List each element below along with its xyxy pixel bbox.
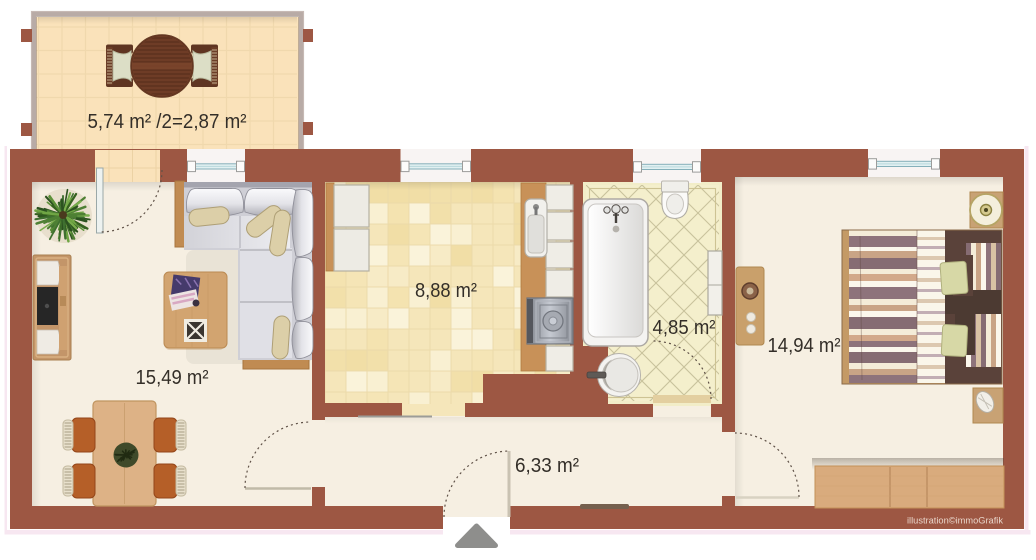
svg-text:8,88 m²: 8,88 m² xyxy=(415,280,477,302)
svg-text:14,94 m²: 14,94 m² xyxy=(768,335,841,357)
svg-text:5,74 m² /2=2,87 m²: 5,74 m² /2=2,87 m² xyxy=(88,111,247,133)
svg-text:6,33 m²: 6,33 m² xyxy=(515,455,579,477)
svg-text:15,49 m²: 15,49 m² xyxy=(136,367,209,389)
svg-text:4,85 m²: 4,85 m² xyxy=(653,317,716,339)
svg-text:illustration©immoGrafik: illustration©immoGrafik xyxy=(907,516,1004,526)
